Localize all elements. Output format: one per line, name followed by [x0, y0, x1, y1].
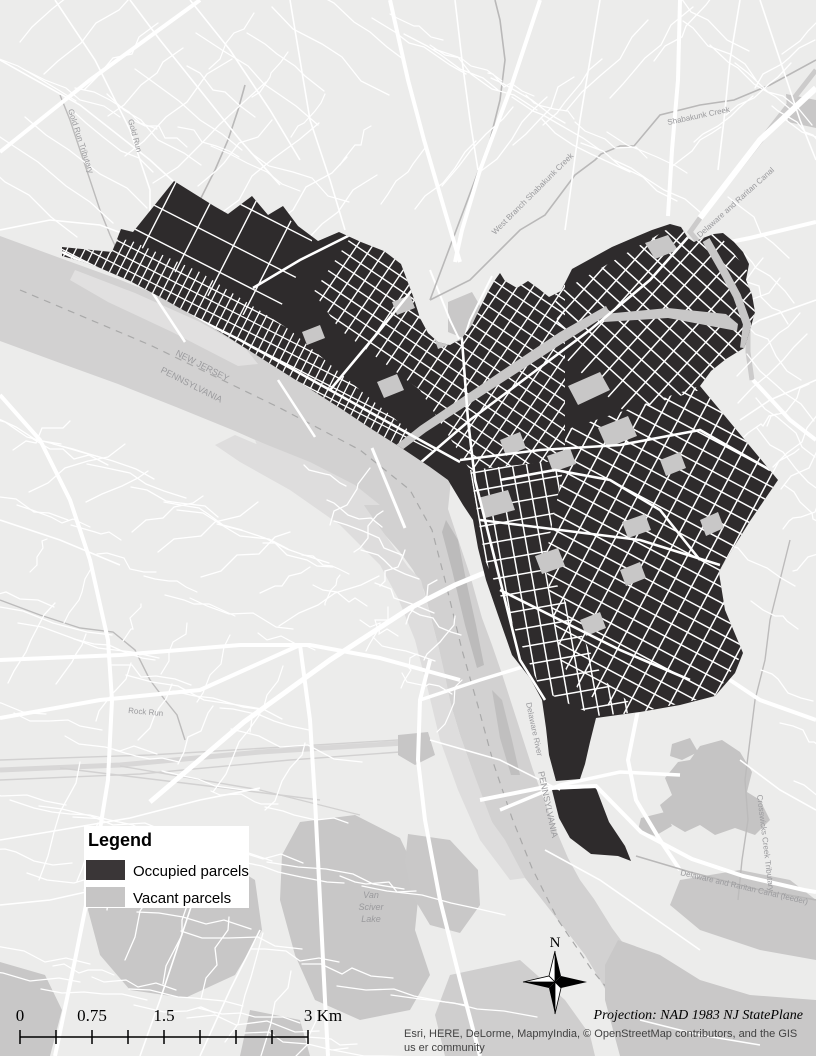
svg-text:Legend: Legend — [88, 830, 152, 850]
svg-text:Projection: NAD 1983 NJ StateP: Projection: NAD 1983 NJ StatePlane — [593, 1008, 803, 1023]
svg-text:Esri, HERE, DeLorme, MapmyIndi: Esri, HERE, DeLorme, MapmyIndia, © OpenS… — [404, 1028, 797, 1040]
svg-text:N: N — [550, 935, 561, 951]
svg-text:1.5: 1.5 — [153, 1006, 174, 1025]
svg-text:Occupied parcels: Occupied parcels — [133, 863, 249, 880]
svg-text:0: 0 — [16, 1006, 25, 1025]
svg-text:Sciver: Sciver — [358, 902, 384, 912]
svg-text:us er community: us er community — [404, 1042, 485, 1054]
svg-text:Van: Van — [363, 890, 379, 900]
svg-text:Lake: Lake — [361, 914, 381, 924]
svg-text:0.75: 0.75 — [77, 1006, 107, 1025]
svg-text:Vacant parcels: Vacant parcels — [133, 890, 231, 907]
svg-text:3 Km: 3 Km — [304, 1006, 342, 1025]
